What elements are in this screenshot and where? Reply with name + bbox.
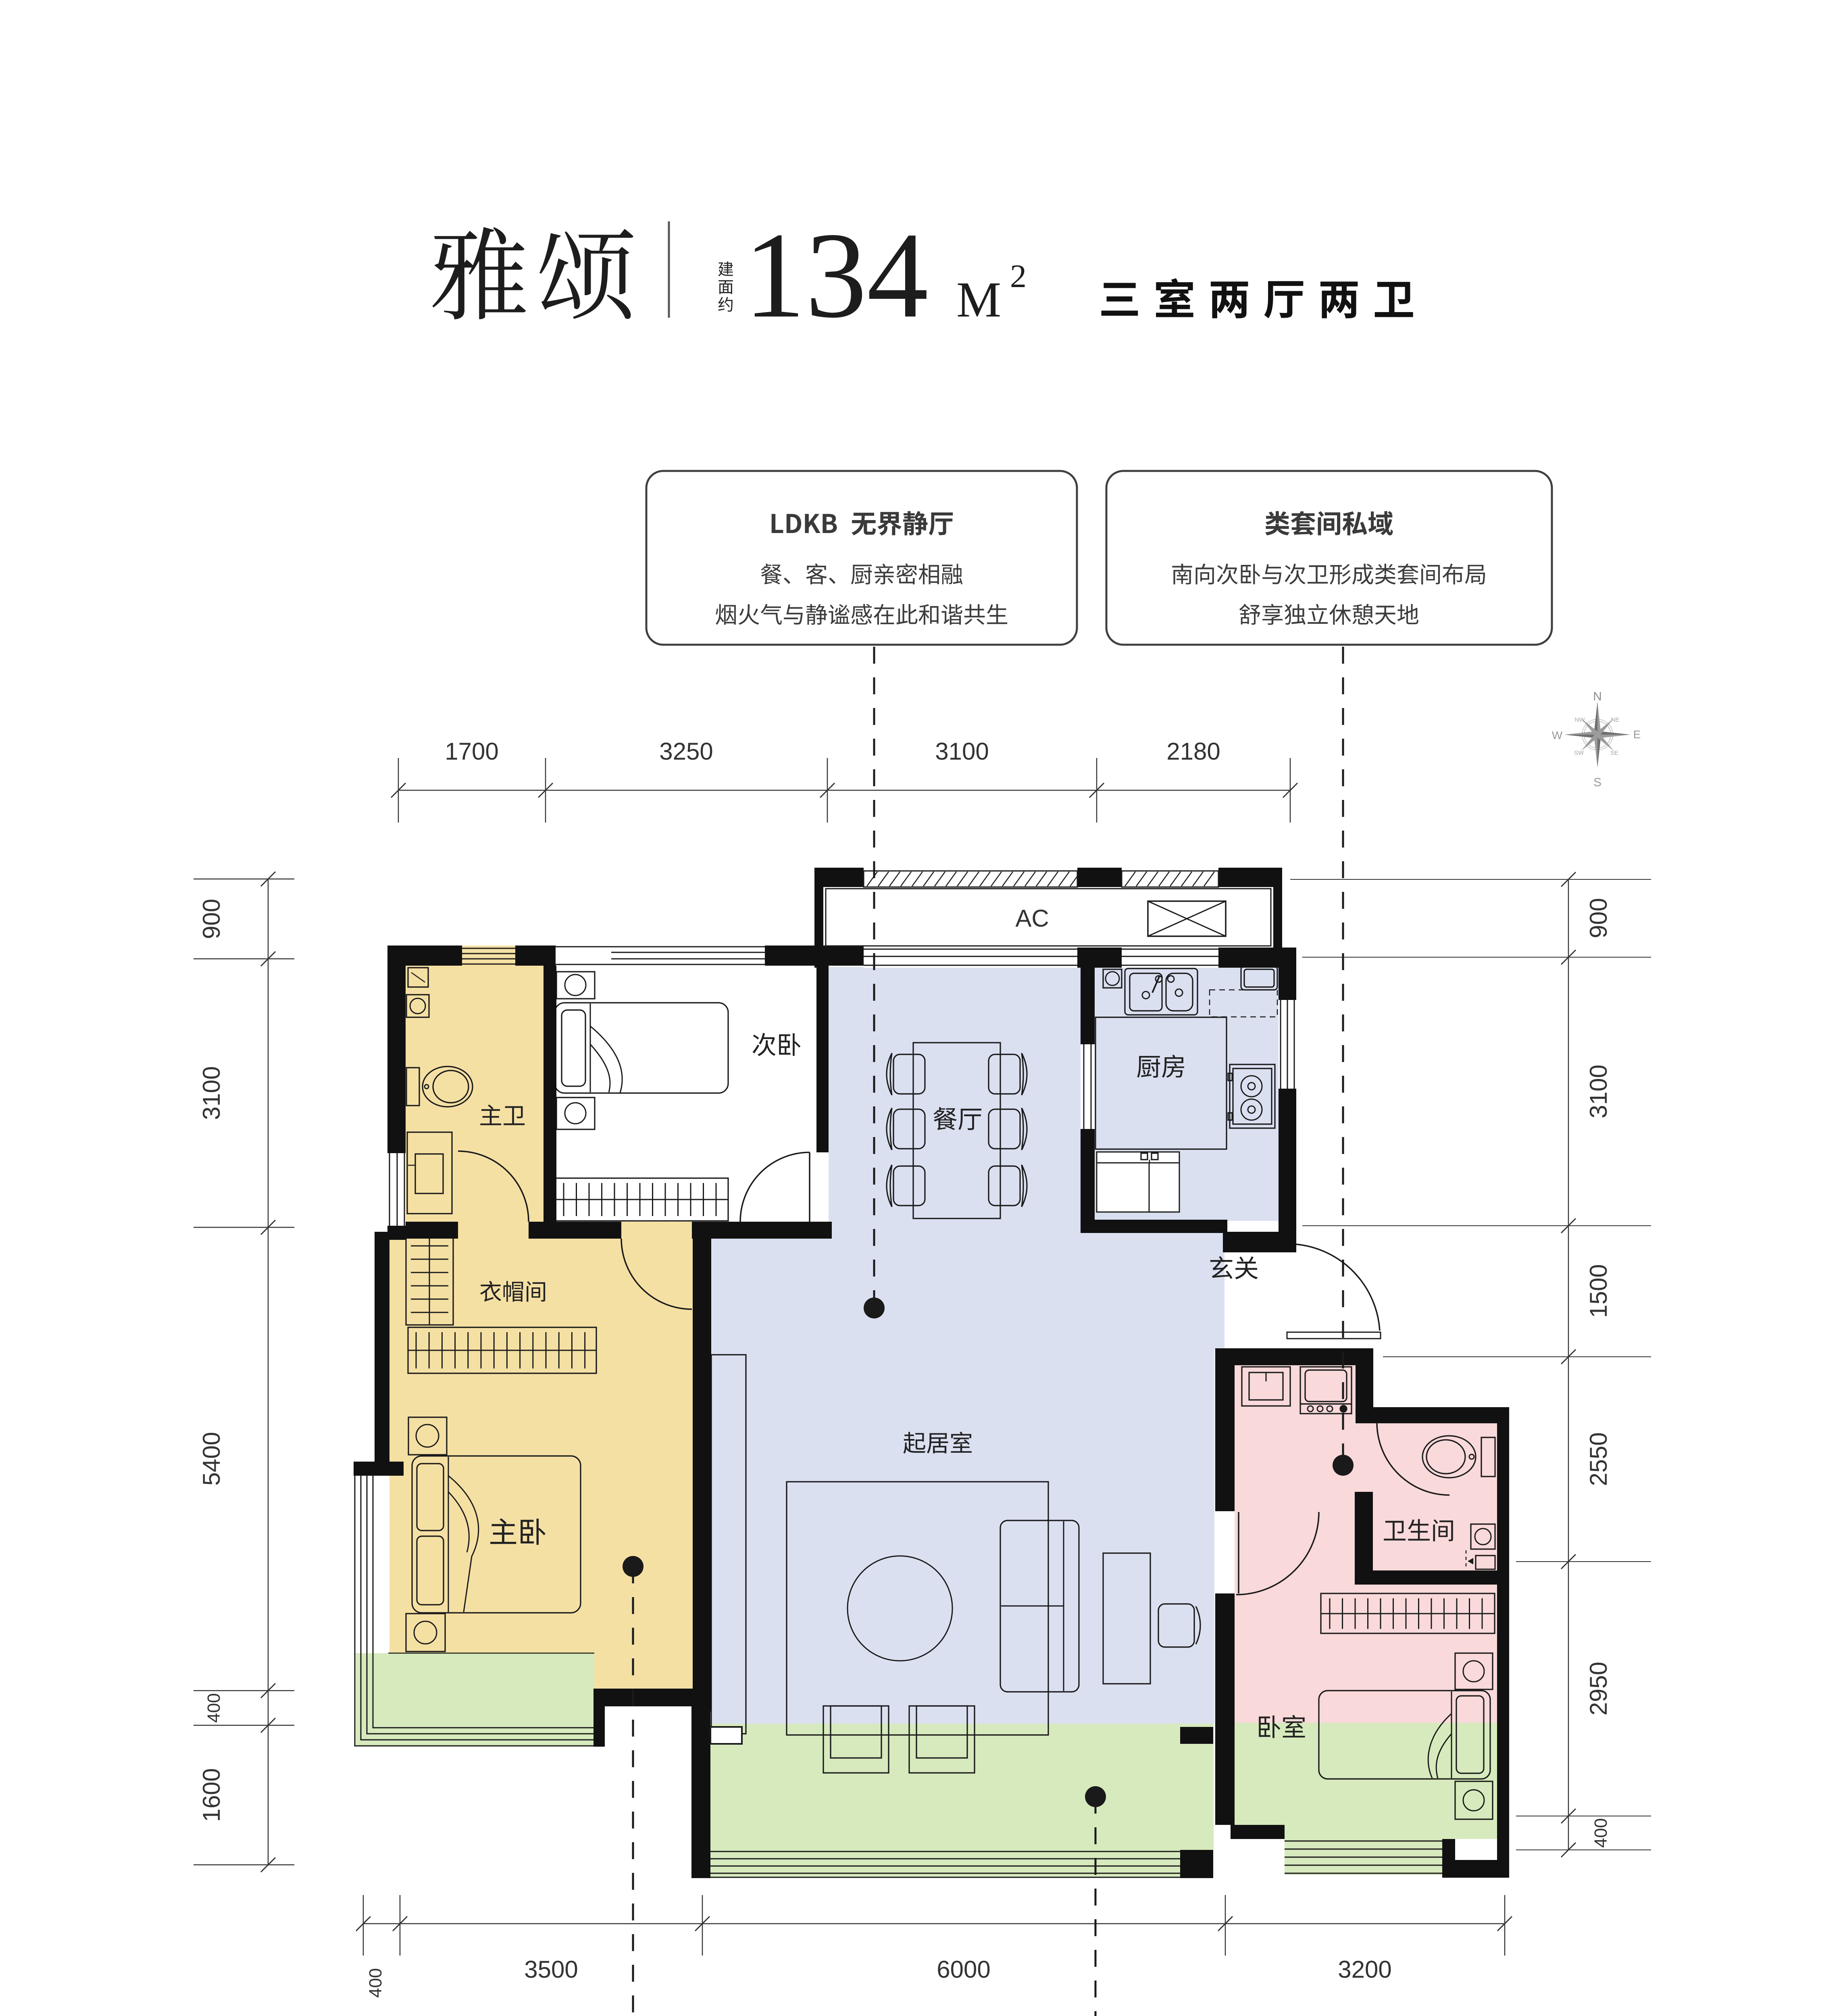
svg-text:3100: 3100 bbox=[198, 1066, 225, 1120]
svg-text:SW: SW bbox=[1574, 750, 1584, 756]
svg-text:900: 900 bbox=[1585, 898, 1612, 938]
svg-text:6000: 6000 bbox=[937, 1956, 990, 1983]
svg-text:3100: 3100 bbox=[1585, 1064, 1612, 1118]
svg-text:3200: 3200 bbox=[1338, 1956, 1391, 1983]
svg-text:M: M bbox=[956, 272, 1001, 328]
svg-text:W: W bbox=[1552, 729, 1563, 741]
svg-text:1500: 1500 bbox=[1585, 1264, 1612, 1318]
svg-text:5400: 5400 bbox=[198, 1432, 225, 1485]
svg-text:2180: 2180 bbox=[1166, 738, 1220, 765]
svg-text:3500: 3500 bbox=[524, 1956, 578, 1983]
svg-text:1600: 1600 bbox=[198, 1768, 225, 1822]
svg-text:NE: NE bbox=[1611, 716, 1620, 723]
svg-text:E: E bbox=[1633, 728, 1641, 741]
svg-text:400: 400 bbox=[1591, 1818, 1611, 1847]
svg-text:2: 2 bbox=[1010, 258, 1027, 294]
svg-text:134: 134 bbox=[744, 207, 929, 343]
svg-text:SE: SE bbox=[1610, 750, 1618, 756]
svg-text:2950: 2950 bbox=[1585, 1662, 1612, 1715]
svg-text:2550: 2550 bbox=[1585, 1432, 1612, 1486]
svg-text:AC: AC bbox=[1015, 905, 1049, 932]
svg-text:3100: 3100 bbox=[935, 738, 989, 765]
svg-text:900: 900 bbox=[198, 899, 225, 939]
svg-text:3250: 3250 bbox=[659, 738, 713, 765]
svg-text:N: N bbox=[1593, 690, 1602, 703]
svg-text:400: 400 bbox=[204, 1693, 224, 1722]
svg-text:NW: NW bbox=[1575, 716, 1585, 723]
svg-text:400: 400 bbox=[366, 1968, 385, 1997]
svg-text:1700: 1700 bbox=[445, 738, 498, 765]
svg-text:S: S bbox=[1593, 776, 1601, 789]
